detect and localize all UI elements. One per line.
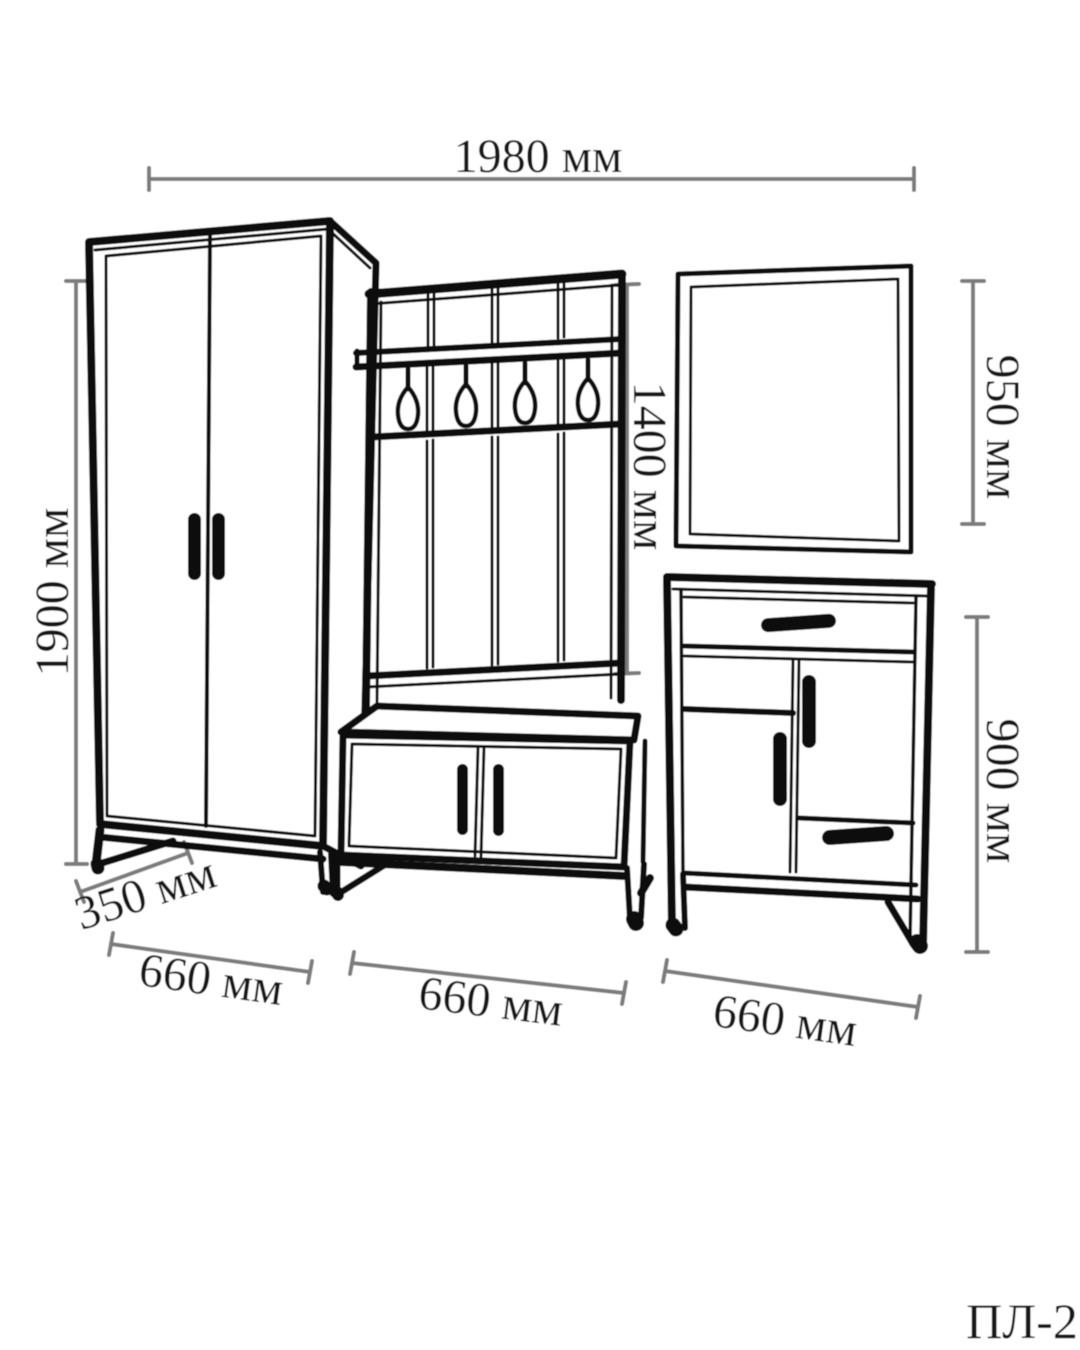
svg-text:ПЛ-2: ПЛ-2 (966, 1293, 1078, 1349)
svg-text:1900 мм: 1900 мм (26, 508, 79, 677)
svg-text:1400 мм: 1400 мм (623, 382, 676, 551)
svg-text:1980 мм: 1980 мм (454, 130, 623, 183)
svg-text:950 мм: 950 мм (976, 355, 1029, 500)
svg-text:900 мм: 900 мм (976, 719, 1029, 864)
